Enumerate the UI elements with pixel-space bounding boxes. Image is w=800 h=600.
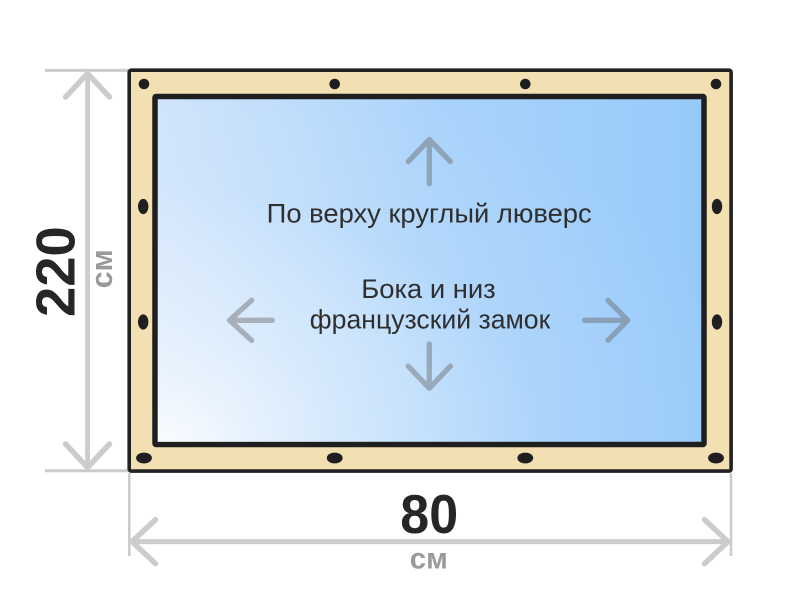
svg-text:По верху круглый люверс: По верху круглый люверс [267,198,592,228]
svg-text:см: см [84,249,119,288]
svg-text:220: 220 [24,226,86,317]
svg-text:см: см [410,543,448,576]
svg-text:французский замок: французский замок [310,305,551,335]
svg-text:80: 80 [400,483,458,545]
svg-text:Бока и низ: Бока и низ [361,274,496,304]
